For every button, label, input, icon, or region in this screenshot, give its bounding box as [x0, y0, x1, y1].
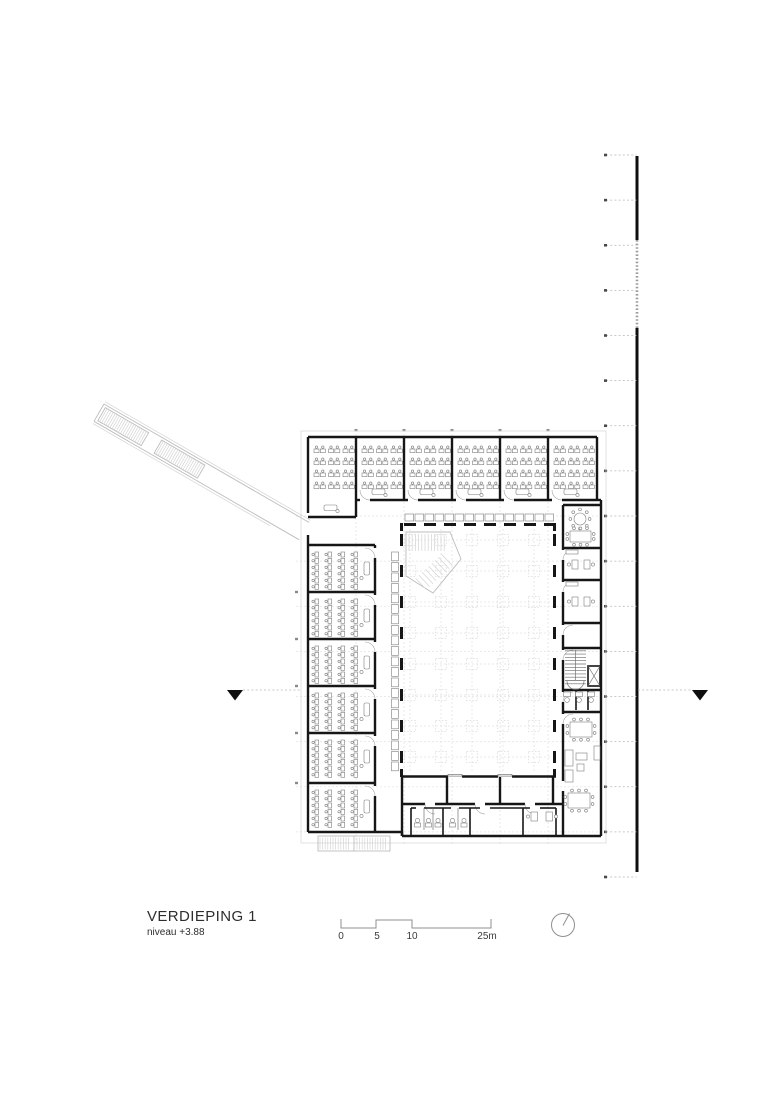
- scale-label-5: 5: [374, 931, 380, 942]
- section-marker-right: [638, 690, 708, 701]
- right-wing: [563, 500, 601, 836]
- floor-plan-drawing: [0, 0, 780, 1103]
- scale-bar: [341, 919, 491, 928]
- page-title: VERDIEPING 1: [147, 908, 257, 925]
- north-arrow-icon: [552, 914, 575, 937]
- scale-label-10: 10: [406, 931, 417, 942]
- level-label: niveau +3.88: [147, 927, 257, 938]
- title-block: VERDIEPING 1 niveau +3.88: [147, 908, 257, 938]
- bottom-wing: [318, 777, 601, 851]
- scale-label-0: 0: [338, 931, 344, 942]
- roof-outline: [301, 431, 606, 843]
- drawing-sheet: VERDIEPING 1 niveau +3.88 0 5 10 25m: [0, 0, 780, 1103]
- central-hall: [392, 514, 557, 777]
- site-boundary-line: [604, 154, 637, 879]
- section-marker-left: [227, 690, 301, 701]
- scale-label-25m: 25m: [477, 931, 496, 942]
- left-wing-classrooms: [308, 545, 402, 836]
- entrance-ramp: [93, 402, 311, 542]
